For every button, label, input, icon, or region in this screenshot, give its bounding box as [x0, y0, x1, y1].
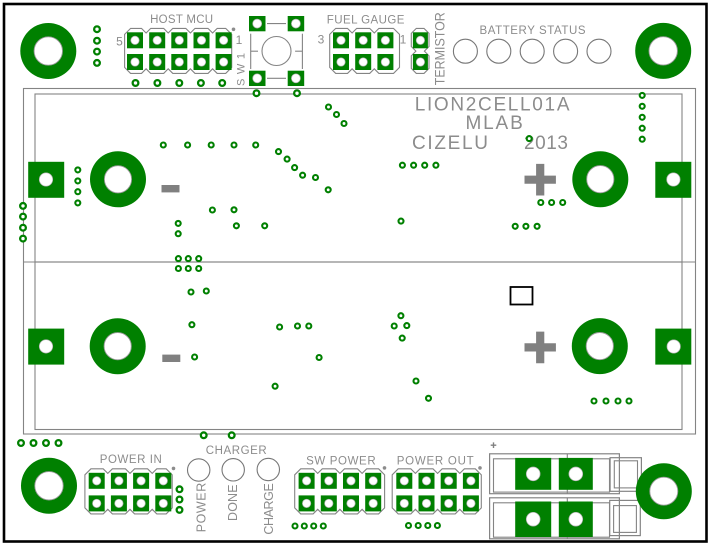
- svg-text:HOST MCU: HOST MCU: [150, 14, 213, 26]
- svg-text:3: 3: [318, 33, 325, 47]
- svg-text:CHARGER: CHARGER: [206, 445, 267, 457]
- svg-text:CHARGE: CHARGE: [262, 483, 276, 535]
- svg-text:CIZELU: CIZELU: [412, 133, 488, 154]
- svg-text:1: 1: [400, 33, 407, 47]
- svg-text:SW POWER: SW POWER: [306, 455, 376, 467]
- svg-text:SW1: SW1: [236, 53, 248, 86]
- svg-text:POWER OUT: POWER OUT: [397, 455, 474, 467]
- svg-text:POWER: POWER: [195, 483, 209, 533]
- svg-text:FUEL GAUGE: FUEL GAUGE: [327, 15, 405, 27]
- svg-text:TERMISTOR: TERMISTOR: [432, 12, 447, 85]
- svg-text:BATTERY STATUS: BATTERY STATUS: [480, 25, 586, 37]
- svg-text:DONE: DONE: [226, 484, 240, 521]
- svg-text:5: 5: [116, 35, 123, 49]
- svg-text:POWER IN: POWER IN: [100, 454, 162, 466]
- svg-text:1: 1: [236, 33, 243, 47]
